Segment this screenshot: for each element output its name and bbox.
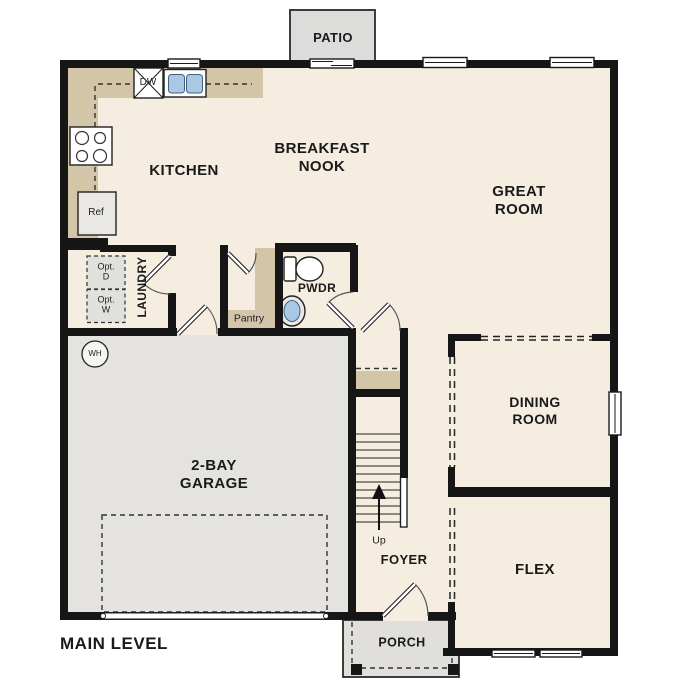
stove-icon	[70, 127, 112, 165]
dining-room-label: DINING ROOM	[509, 394, 560, 428]
closet-shelf	[356, 371, 400, 389]
breakfast-nook-label: BREAKFAST NOOK	[274, 140, 369, 176]
powder-label: PWDR	[298, 281, 336, 295]
stairs-up-label: Up	[372, 535, 385, 548]
sink-icon	[164, 70, 206, 98]
porch-label: PORCH	[378, 636, 425, 651]
garage-door-opening	[101, 613, 329, 619]
laundry-label: LAUNDRY	[135, 256, 149, 317]
floorplan-svg	[0, 0, 687, 687]
floorplan: PATIO KITCHEN BREAKFAST NOOK GREAT ROOM …	[0, 0, 687, 687]
patio-label: PATIO	[313, 30, 353, 46]
water-heater-label: WH	[88, 349, 101, 359]
dishwasher-label: DW	[140, 77, 157, 89]
flex-floor-extension	[448, 612, 610, 648]
optional-dryer-label: Opt. D	[97, 262, 114, 283]
flex-label: FLEX	[515, 561, 555, 579]
toilet-icon	[284, 257, 323, 281]
pantry-label: Pantry	[234, 313, 264, 326]
optional-washer-label: Opt. W	[97, 295, 114, 316]
foyer-label: FOYER	[381, 552, 428, 568]
stair-railing	[401, 477, 408, 527]
kitchen-label: KITCHEN	[149, 162, 218, 180]
patio-slider-door	[310, 59, 354, 68]
garage-label: 2-BAY GARAGE	[180, 457, 248, 493]
refrigerator-label: Ref	[88, 207, 104, 219]
great-room-label: GREAT ROOM	[492, 183, 545, 219]
plan-title: MAIN LEVEL	[60, 634, 168, 654]
